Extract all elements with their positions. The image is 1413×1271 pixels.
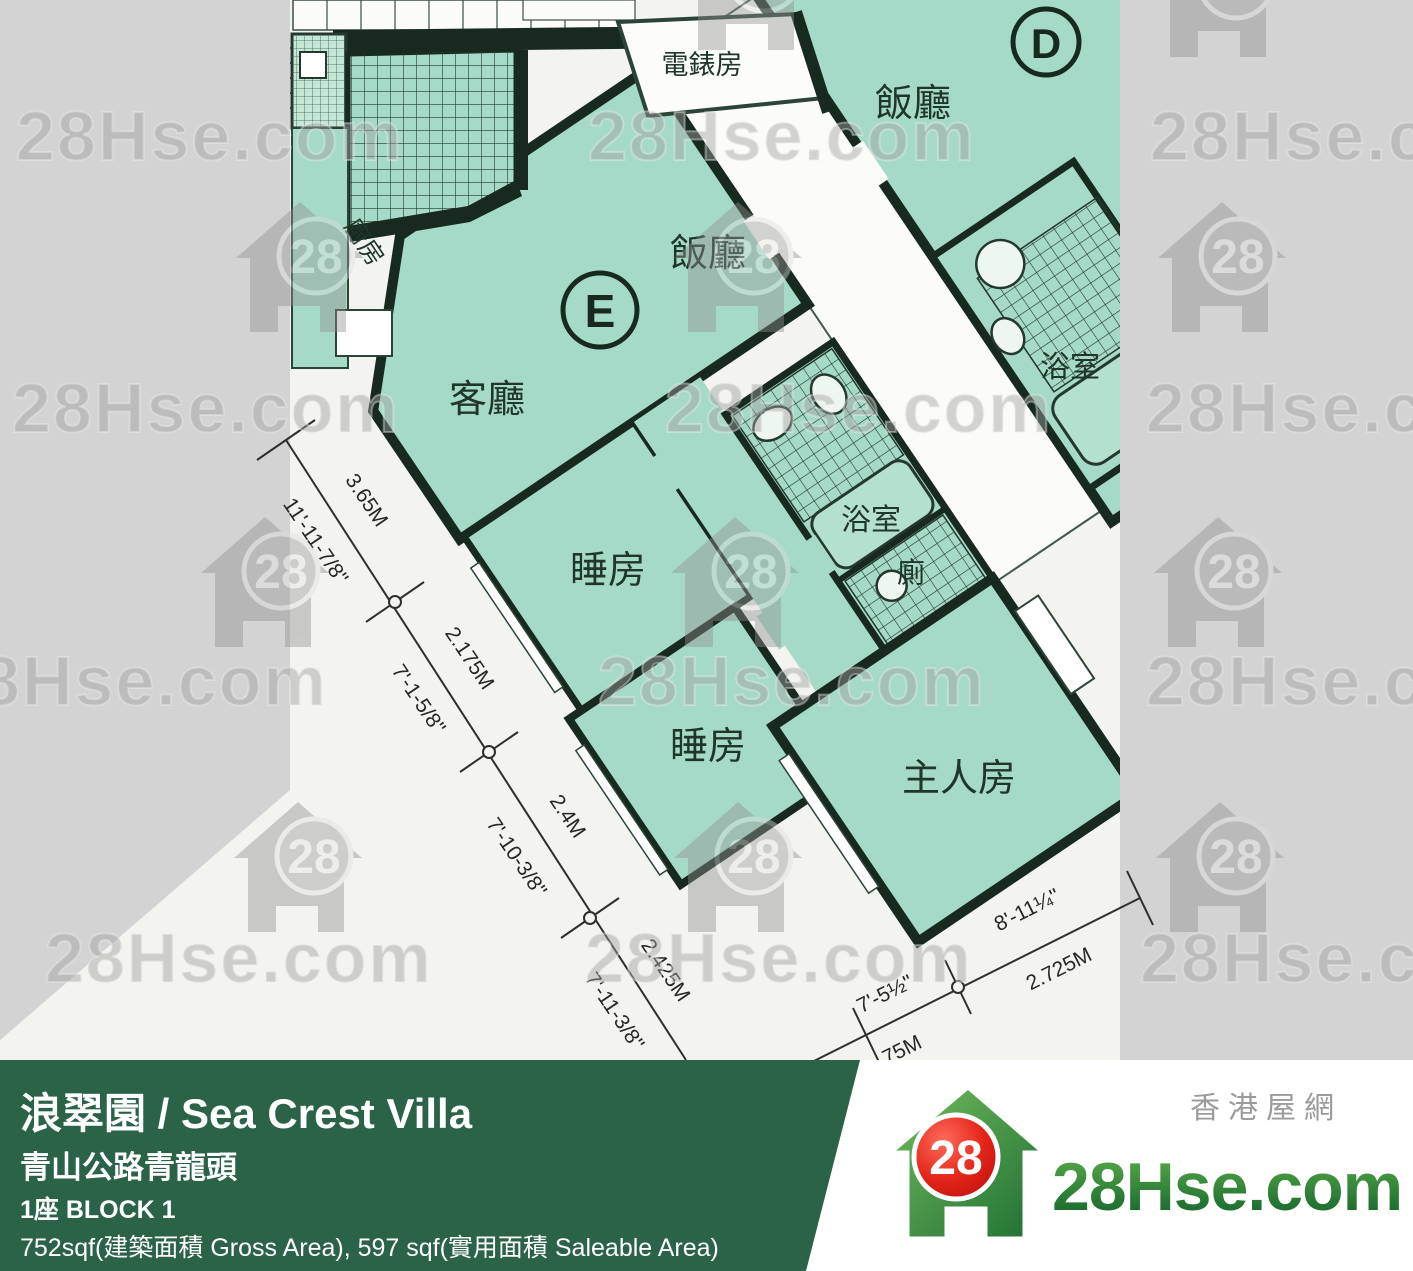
estate-title: 浪翠園 / Sea Crest Villa [20, 1080, 472, 1141]
logo-brand: 28Hse.com [1052, 1149, 1402, 1225]
unit-e-marker: E [585, 285, 616, 337]
estate-address: 青山公路青龍頭 [20, 1142, 237, 1187]
estate-block: 1座 BLOCK 1 [20, 1190, 176, 1226]
watermark-text: 28Hse.com [1146, 642, 1413, 720]
site-logo: 28 28Hse.com 香港屋網 [890, 1060, 1413, 1271]
label-master-bedroom: 主人房 [902, 758, 1016, 800]
svg-text:28: 28 [737, 0, 790, 2]
svg-text:28: 28 [727, 231, 780, 284]
floor-plan-page: 電錶房 飯廳 浴室 飯廳 客廳 睡房 睡房 浴室 廁 主人房 廚房 E D 3.… [0, 0, 1413, 1271]
label-meter-room: 電錶房 [662, 50, 743, 80]
svg-text:28: 28 [1209, 0, 1262, 9]
watermark-text: 28Hse.com [16, 97, 404, 175]
svg-text:28: 28 [254, 546, 307, 599]
watermark-text: 28Hse.com [588, 97, 976, 175]
watermark-text: 28Hse.com [45, 919, 433, 997]
svg-text:28: 28 [289, 231, 342, 284]
label-bath-e: 浴室 [841, 504, 901, 537]
svg-text:28: 28 [1209, 831, 1262, 884]
info-banner: 浪翠園 / Sea Crest Villa 青山公路青龍頭 1座 BLOCK 1… [0, 1060, 1413, 1271]
watermark-text: 28Hse.com [12, 369, 400, 447]
logo-badge: 28 [929, 1132, 982, 1185]
watermark-text: 28Hse.com [665, 369, 1053, 447]
watermark-text: 28Hse.com [1150, 97, 1413, 175]
watermark-text: 28Hse.com [0, 642, 328, 720]
svg-text:28: 28 [1211, 231, 1264, 284]
banner-background: 浪翠園 / Sea Crest Villa 青山公路青龍頭 1座 BLOCK 1… [0, 1060, 880, 1271]
logo-cjk: 香港屋網 [1190, 1092, 1342, 1125]
svg-text:28: 28 [287, 831, 340, 884]
label-bedroom-2: 睡房 [670, 726, 746, 768]
watermark-text: 28Hse.com [1146, 369, 1413, 447]
logo-house-icon: 28 [892, 1088, 1042, 1238]
svg-text:28: 28 [724, 546, 777, 599]
svg-text:28: 28 [1207, 546, 1260, 599]
watermark-text: 28Hse.com [598, 642, 986, 720]
label-toilet: 廁 [897, 557, 925, 588]
estate-area: 752sqf(建築面積 Gross Area), 597 sqf(實用面積 Sa… [20, 1228, 719, 1264]
label-bedroom-1: 睡房 [570, 550, 646, 592]
svg-text:28: 28 [727, 831, 780, 884]
label-living: 客廳 [449, 379, 525, 421]
unit-d-marker: D [1031, 20, 1061, 67]
